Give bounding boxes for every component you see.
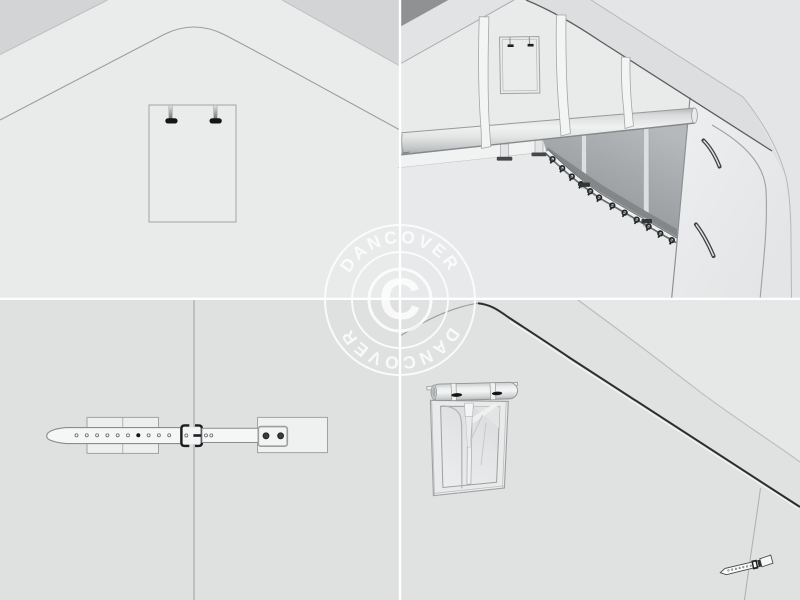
svg-text:C: C bbox=[379, 267, 421, 332]
